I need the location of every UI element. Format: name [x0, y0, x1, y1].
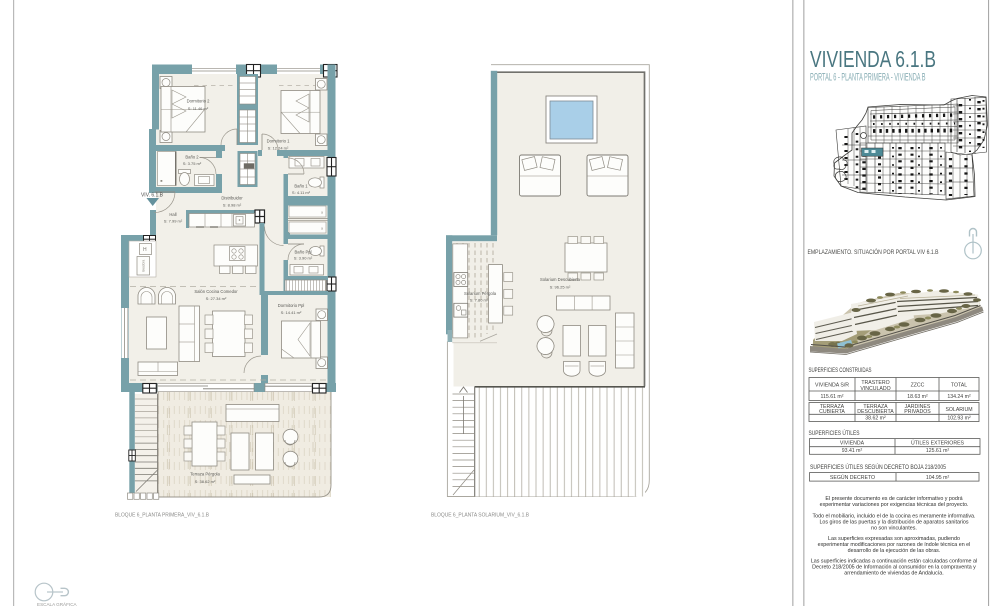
svg-text:PRIVADOS: PRIVADOS	[904, 409, 931, 415]
svg-text:Baño 2: Baño 2	[185, 155, 199, 160]
svg-text:Distribuidor: Distribuidor	[221, 196, 243, 201]
svg-text:115.61 m²: 115.61 m²	[821, 394, 844, 400]
svg-text:VIV. 6.1.B: VIV. 6.1.B	[141, 193, 164, 199]
svg-text:VIVIENDA S/R: VIVIENDA S/R	[815, 382, 849, 388]
svg-text:18.63 m²: 18.63 m²	[907, 394, 928, 400]
svg-text:SOLARIUM: SOLARIUM	[945, 407, 972, 413]
svg-text:93.41 m²: 93.41 m²	[842, 448, 863, 454]
svg-text:SEGÚN DECRETO: SEGÚN DECRETO	[830, 474, 875, 481]
svg-text:Salón Cocina Comedor: Salón Cocina Comedor	[194, 289, 238, 294]
svg-text:S: 4.11 m²: S: 4.11 m²	[292, 190, 311, 195]
svg-text:SUPERFICIES CONSTRUIDAS: SUPERFICIES CONSTRUIDAS	[809, 367, 872, 374]
svg-text:S: 14.41 m²: S: 14.41 m²	[281, 310, 302, 315]
svg-text:S: 3.90 m²: S: 3.90 m²	[294, 256, 313, 261]
svg-text:Hall: Hall	[169, 212, 176, 217]
svg-text:a: a	[321, 211, 323, 215]
svg-text:S: 3.75 m²: S: 3.75 m²	[183, 161, 202, 166]
svg-text:Baño 1: Baño 1	[294, 184, 308, 189]
svg-text:38.62 m²: 38.62 m²	[865, 415, 886, 421]
svg-text:TOTAL: TOTAL	[951, 382, 967, 388]
svg-text:S: 96.25 m²: S: 96.25 m²	[550, 285, 571, 290]
svg-text:experimentar variaciones por e: experimentar variaciones por exigencias …	[820, 502, 969, 508]
svg-text:BLOQUE 6_PLANTA PRIMERA_VIV_6.: BLOQUE 6_PLANTA PRIMERA_VIV_6.1.B	[115, 513, 209, 519]
svg-text:SUPERFICIES ÚTILES: SUPERFICIES ÚTILES	[809, 430, 860, 437]
svg-text:PORTAL 6 - PLANTA PRIMERA - VI: PORTAL 6 - PLANTA PRIMERA - VIVIENDA B	[810, 72, 926, 84]
svg-text:VINCULADO: VINCULADO	[860, 386, 890, 392]
svg-text:Solarium Pérgola: Solarium Pérgola	[464, 291, 497, 296]
svg-text:desarrollo de la ejecución de: desarrollo de la ejecución de las obras.	[848, 548, 941, 554]
svg-text:134.24 m²: 134.24 m²	[947, 394, 971, 400]
svg-text:no son vinculantes.: no son vinculantes.	[871, 526, 917, 532]
svg-text:Terraza Pérgola: Terraza Pérgola	[190, 472, 220, 477]
svg-text:arrendamiento de viviendas de: arrendamiento de viviendas de Andalucía.	[844, 571, 944, 577]
svg-text:S: 27.34 m²: S: 27.34 m²	[206, 296, 227, 301]
svg-text:S: 38.62 m²: S: 38.62 m²	[195, 479, 216, 484]
svg-text:a: a	[321, 227, 323, 231]
svg-text:125.61 m²: 125.61 m²	[926, 448, 950, 454]
svg-text:SUPERFICIES ÚTILES SEGÚN DECRE: SUPERFICIES ÚTILES SEGÚN DECRETO BOJA 21…	[810, 462, 946, 471]
svg-text:VIVIENDA: VIVIENDA	[840, 440, 865, 446]
svg-text:Solarium Descubierta: Solarium Descubierta	[540, 277, 581, 282]
svg-text:ESCALA GRÁFICA: ESCALA GRÁFICA	[37, 601, 78, 606]
svg-text:ZZCC: ZZCC	[911, 382, 925, 388]
svg-text:104.95 m²: 104.95 m²	[926, 475, 950, 481]
svg-text:EMPLAZAMIENTO. SITUACIÓN POR P: EMPLAZAMIENTO. SITUACIÓN POR PORTAL VIV …	[808, 249, 939, 256]
svg-text:Dormitorio 2: Dormitorio 2	[187, 99, 210, 104]
svg-text:Dormitorio 1: Dormitorio 1	[267, 139, 290, 144]
svg-text:Baño Ppl: Baño Ppl	[295, 250, 312, 255]
svg-text:S: 7.99 m²: S: 7.99 m²	[164, 219, 183, 224]
svg-text:CUBIERTA: CUBIERTA	[819, 409, 845, 415]
svg-text:S: 8.98 m²: S: 8.98 m²	[223, 203, 242, 208]
svg-text:H: H	[143, 247, 147, 253]
svg-text:ÚTILES EXTERIORES: ÚTILES EXTERIORES	[911, 439, 965, 446]
svg-text:S: 7.80 m²: S: 7.80 m²	[470, 298, 489, 303]
svg-text:102.93 m²: 102.93 m²	[947, 415, 971, 421]
svg-text:VIVIENDA 6.1.B: VIVIENDA 6.1.B	[810, 46, 936, 72]
svg-text:BLOQUE 6_PLANTA SOLARIUM_VIV_6: BLOQUE 6_PLANTA SOLARIUM_VIV_6.1.B	[431, 513, 530, 519]
svg-text:DESCUBIERTA: DESCUBIERTA	[857, 409, 894, 415]
svg-text:S: 12.24 m²: S: 12.24 m²	[268, 146, 289, 151]
svg-text:Dormitorio Ppl: Dormitorio Ppl	[278, 303, 305, 308]
svg-text:lavadora: lavadora	[142, 260, 146, 272]
svg-text:S: 11.46 m²: S: 11.46 m²	[188, 106, 209, 111]
